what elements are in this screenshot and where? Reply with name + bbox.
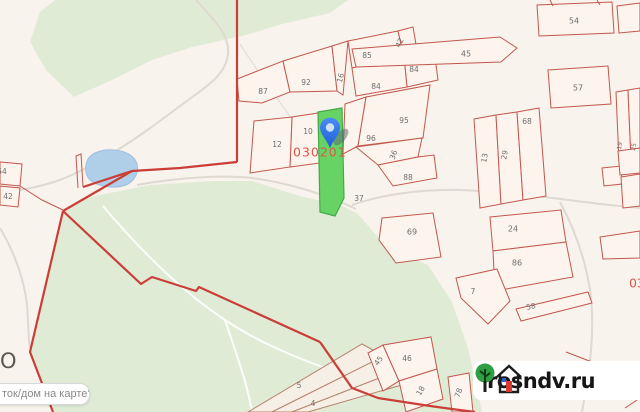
parcel-label: 54 — [0, 167, 7, 176]
parcel-outline — [618, 148, 640, 175]
parcel-label: 87 — [258, 87, 268, 96]
parcel-label: 25 — [630, 142, 638, 151]
watermark-icon — [473, 361, 525, 395]
watermark-logo: rosndv.ru — [473, 361, 640, 400]
parcel-label: 13 — [479, 152, 490, 163]
parcel-label: 86 — [512, 259, 522, 268]
parcel-label: 42 — [3, 192, 13, 201]
parcel-label: 84 — [371, 82, 381, 91]
parcel-label: 12 — [272, 140, 282, 149]
parcel-label: 10 — [303, 127, 313, 136]
parcel-label: 4 — [311, 399, 316, 408]
parcel-label: 030201 — [293, 145, 347, 160]
parcel-label: 96 — [366, 134, 376, 143]
parcel-label: 19 — [616, 141, 624, 150]
parcel-label: 88 — [403, 173, 413, 182]
parcel-label: 45 — [461, 50, 471, 59]
parcel-label: 24 — [508, 225, 518, 234]
parcel-outline — [250, 117, 292, 173]
pin-center-dot — [326, 123, 334, 131]
parcel-label: 5 — [297, 381, 302, 390]
parcel-label: 95 — [399, 116, 409, 125]
parcel-label: 92 — [301, 78, 311, 87]
parcel-label: 03 — [629, 276, 640, 291]
tree-icon — [476, 364, 495, 393]
parcel-label: 7 — [471, 287, 476, 296]
map-canvas[interactable]: 8792168542848495963688371012455457681329… — [0, 0, 640, 412]
parcel-label: 85 — [362, 51, 372, 60]
search-placeholder-text: ток/дом на карте? — [2, 388, 89, 400]
parcel-label: 54 — [569, 17, 579, 26]
parcel-outline — [621, 174, 640, 208]
parcel-label: 68 — [522, 117, 532, 126]
parcel-label: 69 — [407, 228, 417, 237]
parcel-label: 84 — [409, 65, 419, 74]
parcel-label: 37 — [354, 194, 364, 203]
house-icon — [497, 366, 521, 392]
pond — [86, 150, 138, 187]
parcel-label: 57 — [573, 84, 583, 93]
search-input[interactable]: ток/дом на карте? — [0, 383, 90, 405]
cadastral-map[interactable]: 8792168542848495963688371012455457681329… — [0, 0, 640, 412]
parcel-label: 46 — [402, 354, 412, 363]
parcel-label: О — [0, 349, 17, 373]
parcel-outline — [617, 3, 640, 33]
parcel-label: 29 — [499, 149, 510, 160]
